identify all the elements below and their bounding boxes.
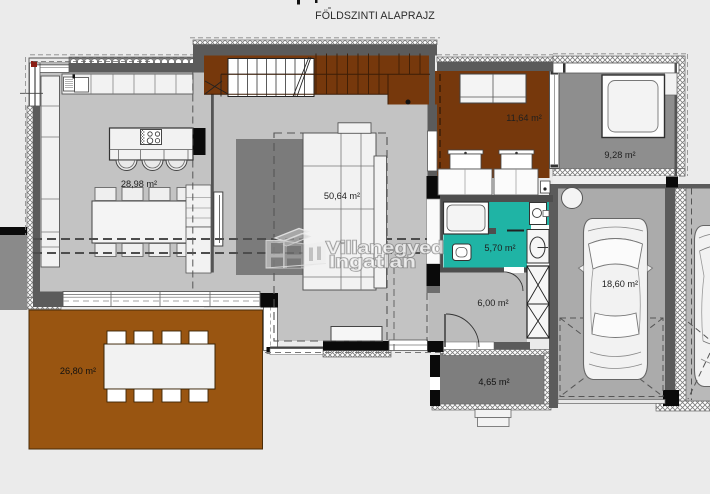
svg-text:6,00 m²: 6,00 m²	[477, 298, 508, 308]
svg-text:50,64 m²: 50,64 m²	[324, 191, 360, 201]
svg-text:4,65 m²: 4,65 m²	[478, 377, 509, 387]
svg-text:5,70 m²: 5,70 m²	[484, 243, 515, 253]
svg-text:11,64 m²: 11,64 m²	[506, 113, 542, 123]
svg-text:Ingatlan: Ingatlan	[329, 252, 416, 272]
svg-text:28,98 m²: 28,98 m²	[121, 179, 157, 189]
svg-text:18,60 m²: 18,60 m²	[602, 279, 638, 289]
svg-text:26,80 m²: 26,80 m²	[60, 366, 96, 376]
svg-text:FÖLDSZINTI ALAPRAJZ: FÖLDSZINTI ALAPRAJZ	[315, 10, 435, 22]
svg-text:9,28 m²: 9,28 m²	[604, 150, 635, 160]
